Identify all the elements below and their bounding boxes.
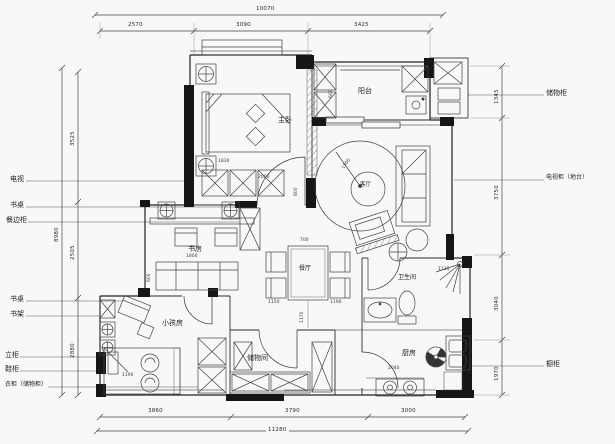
- dim-balcony-depth: 600: [330, 89, 335, 98]
- callout-tv-cabinet: 电视柜（地台）: [546, 175, 588, 181]
- dining-table: [288, 246, 328, 300]
- dining-chair: [330, 252, 350, 272]
- dim-left-seg-2: 2505: [71, 245, 77, 260]
- ceiling-lamp-icon: [196, 156, 216, 176]
- room-label-kids-room: 小孩房: [162, 320, 183, 327]
- callout-desk-1: 书桌: [10, 202, 24, 209]
- kitchen-fixtures: [366, 336, 470, 396]
- dim-top-seg-2: 3090: [236, 23, 251, 29]
- dim-top-seg-1: 2570: [128, 23, 143, 29]
- dim-top-seg-3: 3425: [354, 23, 369, 29]
- ceiling-lamp-icon: [196, 64, 216, 84]
- dim-kitchen: 2040: [388, 367, 399, 372]
- dim-bed-width: 1830: [218, 160, 229, 165]
- sofa: [396, 146, 430, 226]
- dim-left-seg-1: 3525: [71, 131, 77, 146]
- dim-right-seg-2: 3750: [495, 185, 501, 200]
- callout-wardrobe-storage: 衣柜（储物柜）: [5, 382, 47, 388]
- dining-chair: [266, 278, 286, 298]
- floor-plan-sheet: 主卧 阳台 客厅 书房 餐厅 小孩房 储物间 卫生间 厨房 电视 书桌 餐边柜 …: [0, 0, 615, 444]
- storage-cabinets: [230, 342, 332, 393]
- bench-sofa: [156, 262, 238, 290]
- dim-bottom-seg-3: 3000: [401, 409, 416, 415]
- sink-icon: [364, 298, 396, 322]
- dining-chair: [330, 278, 350, 298]
- callout-sideboard: 餐边柜: [6, 217, 27, 224]
- dim-bottom-total: 11280: [266, 428, 289, 434]
- callout-desk-2: 书桌: [10, 296, 24, 303]
- bed: [202, 92, 290, 154]
- room-label-dining: 餐厅: [299, 266, 311, 272]
- dim-right-seg-4: 1970: [495, 366, 501, 381]
- dim-door: 800: [295, 187, 300, 196]
- toilet-icon: [398, 291, 416, 324]
- stove-icon: [376, 379, 424, 396]
- dim-right-seg-3: 3040: [495, 296, 501, 311]
- room-label-bathroom: 卫生间: [398, 275, 416, 281]
- dim-bench-depth: 600: [148, 273, 153, 282]
- dim-table-width: 700: [300, 239, 309, 244]
- round-table: [351, 172, 385, 206]
- room-label-study: 书房: [188, 246, 202, 253]
- desk-chair: [215, 228, 237, 246]
- callout-tall-cabinet: 立柜: [5, 352, 19, 359]
- callout-storage-cabinet: 储物柜: [546, 90, 567, 97]
- dim-dining-left: 1150: [268, 301, 279, 306]
- callout-tv: 电视: [10, 176, 24, 183]
- wardrobe: [202, 170, 284, 196]
- room-label-kitchen: 厨房: [402, 350, 416, 357]
- dim-dining-right: 1190: [330, 301, 341, 306]
- dim-top-total: 10070: [256, 7, 275, 13]
- dim-bath: 1135: [438, 268, 449, 273]
- room-label-living-room: 客厅: [360, 183, 371, 189]
- room-label-balcony: 阳台: [358, 88, 372, 95]
- dining-chair: [266, 252, 286, 272]
- room-label-storage: 储物间: [247, 355, 268, 362]
- dim-kids-bed: 1190: [122, 374, 133, 379]
- wall-fills: [96, 55, 474, 401]
- callout-bookshelf: 书架: [10, 311, 24, 318]
- dim-bench-length: 1800: [186, 255, 197, 260]
- ceiling-lamp-icon: [100, 322, 115, 337]
- kids-room-furniture: [100, 295, 226, 394]
- study-furniture: [150, 202, 260, 290]
- callout-shoe-cabinet: 鞋柜: [5, 366, 19, 373]
- kids-desk: [113, 295, 161, 338]
- dim-hall: 1170: [301, 312, 306, 323]
- armchair-icon: [389, 243, 407, 261]
- sideboard: [240, 208, 260, 250]
- radius-line: [336, 152, 360, 186]
- floorplan-drawing: [0, 0, 615, 444]
- storage-shaft: [434, 62, 462, 114]
- master-bedroom-furniture: [196, 40, 290, 196]
- callout-kitchen-cabinet: 橱柜: [546, 361, 560, 368]
- dim-bottom-seg-2: 3790: [285, 409, 300, 415]
- dim-bottom-seg-1: 3860: [148, 409, 163, 415]
- dim-right-seg-1: 1345: [495, 89, 501, 104]
- room-label-master-bedroom: 主卧: [278, 117, 292, 124]
- desk-chair: [175, 228, 197, 246]
- dim-dresser: 2000: [258, 176, 269, 181]
- dining-set: [266, 246, 350, 328]
- dim-left-total: 8980: [55, 227, 61, 242]
- tv-stand: [347, 210, 399, 254]
- side-table: [406, 229, 428, 251]
- kids-wardrobe: [198, 338, 226, 393]
- fan-symbol-icon: [426, 347, 446, 367]
- living-room-items: [315, 141, 430, 261]
- exterior-walls: [100, 51, 470, 395]
- dim-left-seg-3: 2880: [71, 343, 77, 358]
